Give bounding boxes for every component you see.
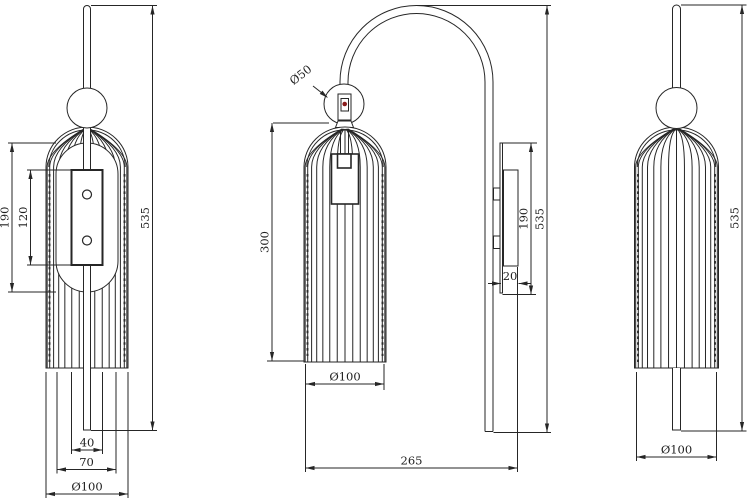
dimension-535: 535 [138,6,155,431]
back-view: 535Ø100 [635,5,747,461]
dim-label: Ø50 [287,62,315,88]
dim-label: 535 [138,207,152,229]
technical-drawing: 1901205354070Ø100Ø5030053519020Ø10026553… [0,0,748,500]
dimension-190: 190 [0,143,14,292]
dimension-535: 535 [533,6,550,433]
dimension-Ø100: Ø100 [637,443,717,460]
dim-label: 190 [517,208,531,230]
dim-label: 20 [503,269,518,283]
sphere-joint [324,84,364,128]
dim-label: Ø100 [329,370,360,384]
dim-label: 70 [79,455,94,469]
red-marker [342,102,347,107]
dimension-120: 120 [16,170,33,265]
dimension-265: 265 [306,454,518,471]
dimension-535: 535 [728,5,745,431]
dimension-20: 20 [488,269,531,286]
side-view: Ø5030053519020Ø100265 [258,6,552,473]
dim-label: 120 [16,207,30,229]
dimension-Ø50: Ø50 [287,62,330,100]
dim-label: Ø100 [661,443,692,457]
dimension-300: 300 [258,123,275,361]
dimension-Ø100: Ø100 [306,370,384,387]
dim-label: Ø100 [71,480,102,494]
fluted-shade [635,127,719,368]
dim-label: 535 [728,207,742,229]
mounting-plate [72,170,103,265]
front-view: 1901205354070Ø100 [0,6,157,499]
dimension-Ø100: Ø100 [46,480,128,497]
dimension-70: 70 [57,455,116,472]
dimension-40: 40 [72,436,103,453]
dim-label: 190 [0,207,12,229]
dim-label: 300 [258,231,272,253]
dim-label: 40 [80,436,95,450]
dimension-190: 190 [517,143,534,295]
dim-label: 265 [401,454,423,468]
dim-label: 535 [533,208,547,230]
lamp-drawing-canvas: 1901205354070Ø100Ø5030053519020Ø10026553… [0,0,748,500]
